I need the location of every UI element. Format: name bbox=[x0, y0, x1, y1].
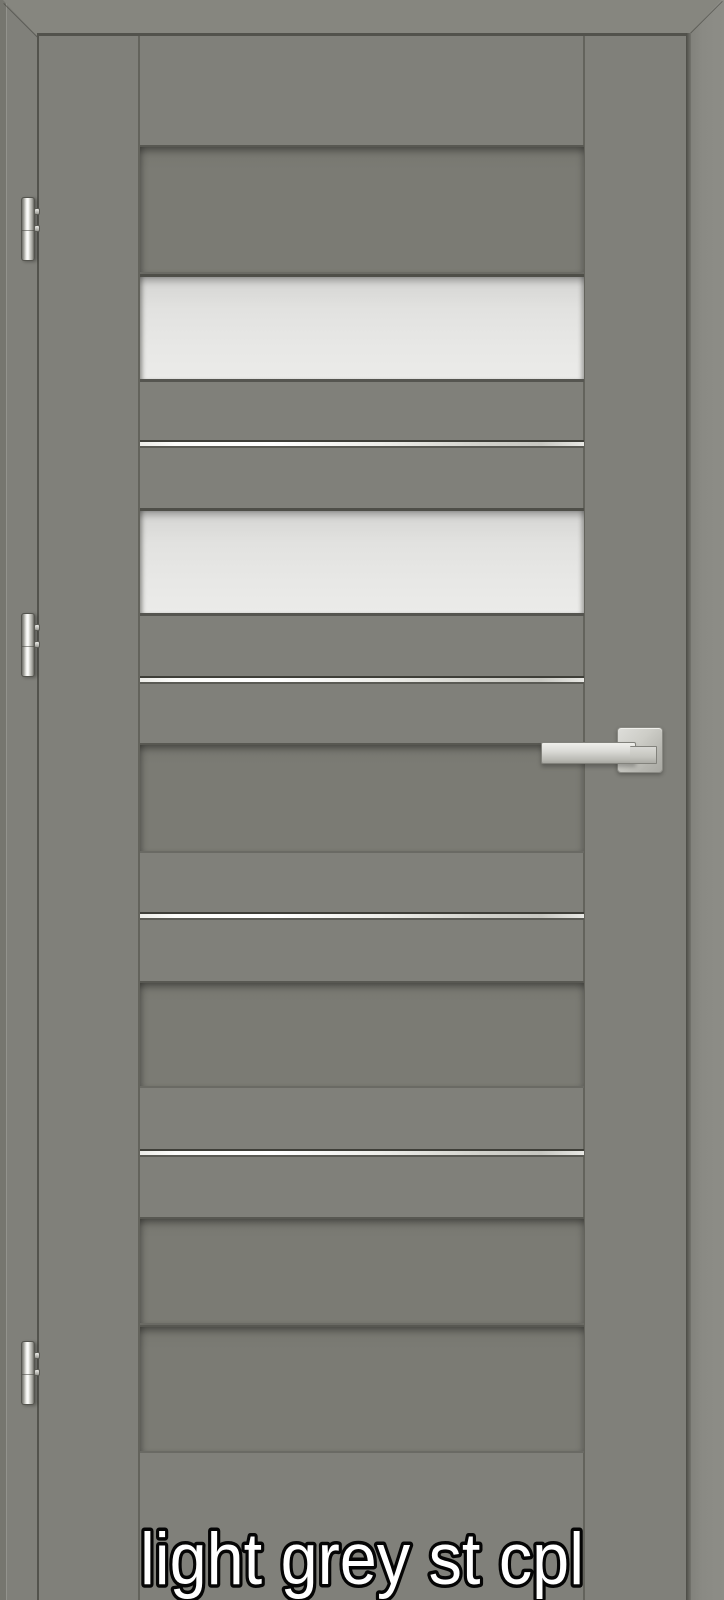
door-hinge bbox=[21, 1341, 35, 1405]
frame-left-edge-highlight bbox=[6, 0, 7, 1600]
product-caption-text: light grey st cpl bbox=[140, 1519, 584, 1600]
hinge-pin bbox=[34, 1369, 40, 1376]
product-caption: light grey st cpl bbox=[0, 1500, 724, 1600]
hinge-pin bbox=[34, 225, 40, 232]
recessed-panel bbox=[140, 145, 584, 274]
aluminium-strip bbox=[140, 912, 584, 920]
door-frame-right bbox=[691, 0, 724, 1600]
handle-lever-neck bbox=[630, 746, 657, 764]
aluminium-strip bbox=[140, 1149, 584, 1157]
glass-pane bbox=[140, 274, 584, 382]
recessed-panel bbox=[140, 981, 584, 1088]
door-handle-lever bbox=[541, 742, 636, 764]
hinge-pin bbox=[34, 641, 40, 648]
recessed-panel bbox=[140, 1325, 584, 1453]
door-frame-gap-right bbox=[686, 33, 691, 1600]
hinge-pin bbox=[34, 1352, 40, 1359]
door-band-area bbox=[140, 0, 584, 1600]
aluminium-strip bbox=[140, 440, 584, 448]
door-hinge bbox=[21, 197, 35, 261]
door-photo: light grey st cpl bbox=[0, 0, 724, 1600]
hinge-pin bbox=[34, 624, 40, 631]
glass-pane bbox=[140, 508, 584, 616]
recessed-panel bbox=[140, 1217, 584, 1325]
hinge-pin bbox=[34, 208, 40, 215]
door-hinge bbox=[21, 613, 35, 677]
aluminium-strip bbox=[140, 676, 584, 684]
recessed-panel bbox=[140, 743, 584, 853]
